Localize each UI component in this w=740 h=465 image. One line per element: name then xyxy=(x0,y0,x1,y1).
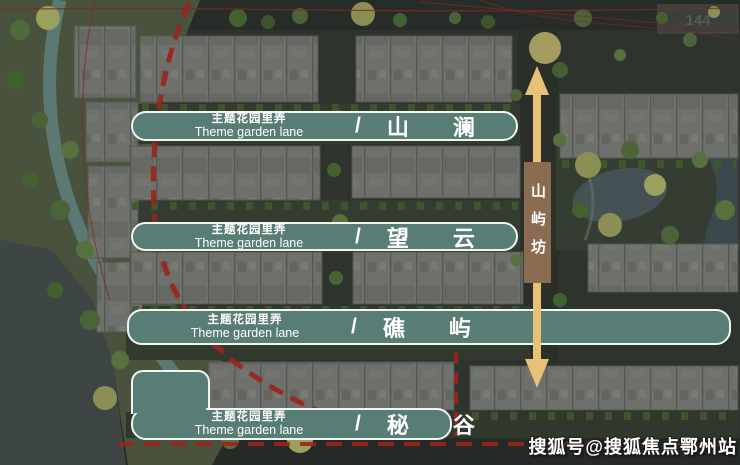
divider-slash: / xyxy=(355,225,361,249)
lane-name-wrap: / 山澜 xyxy=(355,110,519,142)
lane-name: 礁屿 xyxy=(383,311,515,343)
lane-name-wrap: / 望云 xyxy=(355,221,519,253)
lane-label-en: Theme garden lane xyxy=(155,327,335,340)
lane-label-en: Theme garden lane xyxy=(159,424,339,437)
lane-name: 望云 xyxy=(387,221,519,253)
lane-label: 主题花园里弄 Theme garden lane xyxy=(159,113,339,139)
lane-name: 山澜 xyxy=(387,110,519,142)
site-plan-screenshot: 144 xyxy=(0,0,740,465)
banner-seam xyxy=(135,407,206,413)
lane-name-wrap: / 礁屿 xyxy=(351,311,515,343)
watermark-text: 搜狐号@搜狐焦点鄂州站 xyxy=(528,433,737,459)
lane-label: 主题花园里弄 Theme garden lane xyxy=(159,224,339,250)
theme-lane-banner-shanlan: 主题花园里弄 Theme garden lane / 山澜 xyxy=(131,111,518,141)
theme-lane-banner-jiaoyu: 主题花园里弄 Theme garden lane / 礁屿 xyxy=(127,309,731,345)
lane-name: 秘谷 xyxy=(387,408,519,440)
theme-lane-banner-wangyun: 主题花园里弄 Theme garden lane / 望云 xyxy=(131,222,518,251)
vertical-lane-badge: 山屿坊 xyxy=(524,162,551,283)
lane-label: 主题花园里弄 Theme garden lane xyxy=(155,314,335,340)
divider-slash: / xyxy=(351,315,357,339)
lane-name-wrap: / 秘谷 xyxy=(355,408,519,440)
lane-label: 主题花园里弄 Theme garden lane xyxy=(159,411,339,437)
divider-slash: / xyxy=(355,412,361,436)
divider-slash: / xyxy=(355,114,361,138)
lane-label-en: Theme garden lane xyxy=(159,126,339,139)
lane-label-en: Theme garden lane xyxy=(159,237,339,250)
